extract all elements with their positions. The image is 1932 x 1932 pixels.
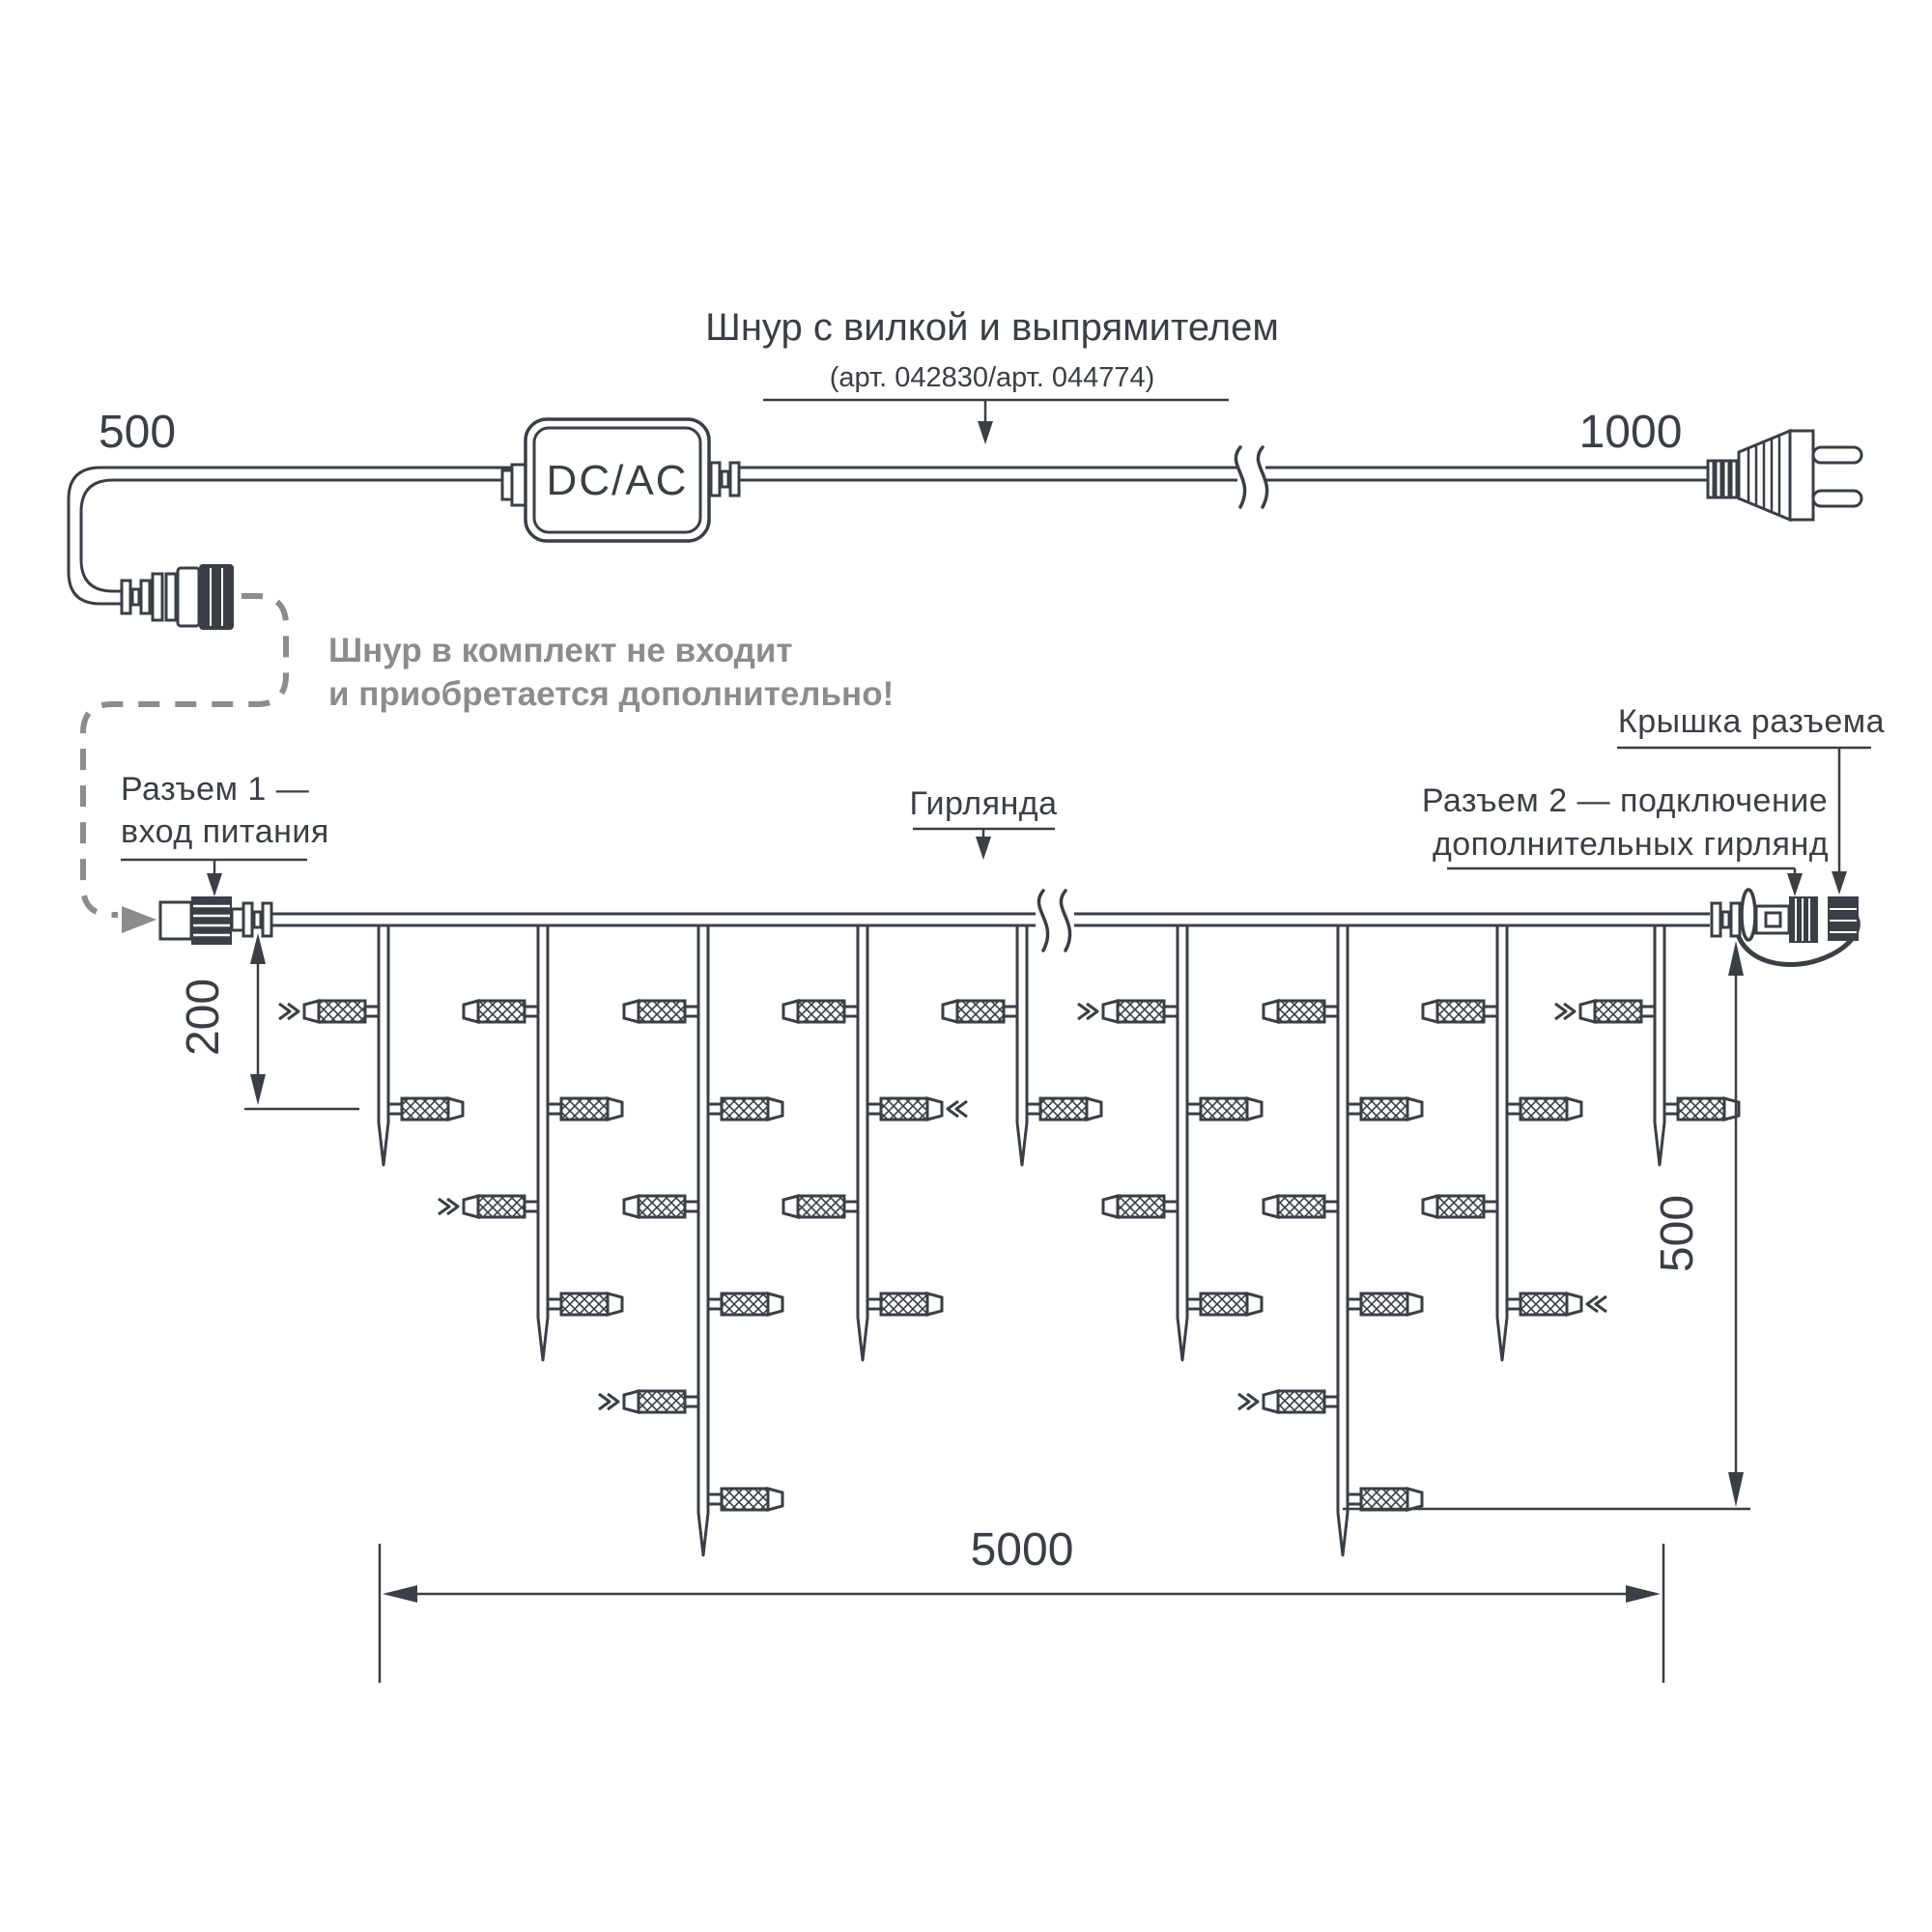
led-bulb	[1361, 1489, 1407, 1510]
title-arrow	[978, 421, 993, 444]
bulb-tip	[1264, 1001, 1278, 1022]
dim-500-height-value: 500	[1652, 1195, 1703, 1272]
led-bulb	[1040, 1098, 1087, 1120]
bulb-neck	[548, 1104, 561, 1114]
bulb-neck	[685, 1007, 698, 1016]
connector1-callout: Разъем 1 — вход питания	[121, 771, 329, 896]
led-bulb	[1201, 1293, 1247, 1315]
bulb-marker-chevron	[1238, 1394, 1249, 1409]
wire-joint	[132, 589, 139, 605]
bulb-tip	[927, 1098, 942, 1120]
led-bulb	[881, 1293, 927, 1315]
bulb-neck	[525, 1007, 538, 1016]
wire-joint	[730, 463, 739, 496]
connector2-callout: Разъем 2 — подключение дополнительных ги…	[1422, 782, 1829, 896]
cord-title-callout: Шнур с вилкой и выпрямителем (арт. 04283…	[705, 306, 1279, 444]
garland-drop	[379, 924, 388, 1165]
bulb-tip	[624, 1196, 639, 1217]
connector2-label-line2: дополнительных гирлянд	[1433, 826, 1829, 863]
bulb-marker-chevron	[439, 1199, 449, 1214]
bulb-marker-chevron	[279, 1004, 290, 1019]
garland-drop	[858, 924, 867, 1360]
bulb-marker-chevron	[956, 1101, 967, 1117]
bulb-tip	[927, 1293, 942, 1315]
bulb-tip	[1580, 1001, 1595, 1022]
bulb-neck	[1348, 1104, 1361, 1114]
bulb-neck	[1641, 1007, 1655, 1016]
bulb-marker-chevron	[1555, 1004, 1566, 1019]
bulb-neck	[1187, 1104, 1201, 1114]
dim-1000-cord: 1000	[1579, 407, 1683, 458]
garland-drop	[1178, 924, 1187, 1360]
led-bulb	[478, 1196, 525, 1217]
bulb-tip	[768, 1098, 782, 1120]
bulb-tip	[1264, 1196, 1278, 1217]
bulb-tip	[1407, 1489, 1422, 1510]
led-bulb	[798, 1196, 844, 1217]
cord-output-connector	[153, 564, 234, 630]
bulb-tip	[1407, 1098, 1422, 1120]
bulb-neck	[1664, 1104, 1678, 1114]
wire-joint	[1731, 903, 1740, 936]
led-bulb	[1201, 1098, 1247, 1120]
bulb-neck	[1484, 1007, 1497, 1016]
led-bulb	[639, 1196, 685, 1217]
led-bulb	[1595, 1001, 1641, 1022]
bulb-tip	[1247, 1293, 1262, 1315]
bulb-neck	[365, 1007, 379, 1016]
bulb-neck	[525, 1202, 538, 1211]
dim-500-height: 500	[1343, 941, 1750, 1509]
bulb-marker-chevron	[1596, 1296, 1606, 1312]
bulb-tip	[783, 1196, 798, 1217]
led-bulb	[319, 1001, 365, 1022]
led-bulb	[722, 1489, 768, 1510]
bulb-neck	[1324, 1397, 1338, 1406]
note-line2: и приобретается дополнительно!	[328, 675, 894, 713]
bulb-tip	[448, 1098, 463, 1120]
garland-drop	[1338, 924, 1348, 1555]
seal-ring	[1742, 890, 1755, 940]
led-bulb	[798, 1001, 844, 1022]
led-bulb	[1278, 1001, 1324, 1022]
led-bulb	[478, 1001, 525, 1022]
led-bulb	[722, 1098, 768, 1120]
plug-prong-bottom	[1813, 491, 1861, 506]
plug-prong-top	[1813, 447, 1861, 463]
bulb-neck	[1187, 1299, 1201, 1309]
wire-joint	[122, 581, 130, 613]
bulb-neck	[388, 1104, 402, 1114]
wire-break-mark	[1258, 447, 1266, 507]
garland-drop	[538, 924, 548, 1360]
cord-subtitle: (арт. 042830/арт. 044774)	[830, 362, 1155, 393]
led-bulb	[1361, 1098, 1407, 1120]
led-bulb	[1520, 1098, 1567, 1120]
bulb-neck	[1348, 1494, 1361, 1504]
bulb-tip	[624, 1391, 639, 1412]
dc-ac-converter: DC/AC	[502, 419, 709, 541]
cord-connector-knurl	[199, 564, 234, 630]
wire-joint	[254, 912, 261, 927]
led-bulb	[881, 1098, 927, 1120]
bulb-neck	[1507, 1299, 1520, 1309]
dim-5000: 5000	[380, 1524, 1663, 1683]
garland-wiring-diagram: DC/AC Шнур с вилкой и выпрямителем (арт.…	[0, 0, 1932, 1932]
dashed-arrow	[122, 906, 156, 933]
bulb-neck	[708, 1299, 722, 1309]
garland-callout: Гирлянда	[909, 785, 1057, 860]
cord-title: Шнур с вилкой и выпрямителем	[705, 306, 1279, 349]
bulb-neck	[844, 1007, 858, 1016]
note-line1: Шнур в комплект не входит	[328, 632, 793, 669]
led-bulb	[639, 1001, 685, 1022]
cap-label: Крышка разъема	[1618, 703, 1885, 740]
wire-joint	[141, 581, 150, 613]
dim-200-value: 200	[178, 979, 229, 1056]
bulb-neck	[1324, 1202, 1338, 1211]
led-bulb	[722, 1293, 768, 1315]
bulb-tip	[624, 1001, 639, 1022]
bulb-neck	[685, 1202, 698, 1211]
wire-joint	[711, 463, 720, 496]
bulb-neck	[867, 1299, 881, 1309]
bulb-tip	[608, 1098, 622, 1120]
bulb-neck	[1164, 1007, 1178, 1016]
bulb-tip	[768, 1489, 782, 1510]
bulb-tip	[1264, 1391, 1278, 1412]
garland-drops	[122, 447, 1740, 1555]
bulb-neck	[844, 1202, 858, 1211]
bulb-tip	[943, 1001, 957, 1022]
led-bulb	[639, 1391, 685, 1412]
wire-break-mark	[1236, 447, 1244, 507]
wire-joint	[1712, 903, 1720, 936]
led-bulb	[1278, 1196, 1324, 1217]
mains-plug	[1708, 431, 1861, 520]
garland-drop	[1655, 924, 1664, 1165]
bulb-tip	[1567, 1293, 1581, 1315]
bulb-neck	[1164, 1202, 1178, 1211]
connector1-label-line1: Разъем 1 —	[121, 771, 309, 808]
bulb-tip	[464, 1001, 478, 1022]
wire-joint	[263, 903, 271, 936]
led-bulb	[1118, 1001, 1164, 1022]
led-bulb	[957, 1001, 1004, 1022]
wire-break-mark	[1038, 891, 1047, 951]
garland-drop	[1017, 924, 1027, 1165]
garland-drop	[698, 924, 708, 1555]
garland-label: Гирлянда	[909, 785, 1057, 822]
bulb-tip	[783, 1001, 798, 1022]
bulb-tip	[768, 1293, 782, 1315]
connector1-label-line2: вход питания	[121, 813, 329, 850]
bulb-marker-chevron	[1078, 1004, 1089, 1019]
bulb-tip	[1087, 1098, 1101, 1120]
led-bulb	[1278, 1391, 1324, 1412]
led-bulb	[402, 1098, 448, 1120]
bulb-tip	[608, 1293, 622, 1315]
bulb-neck	[1027, 1104, 1040, 1114]
bulb-neck	[708, 1494, 722, 1504]
bulb-tip	[1423, 1001, 1437, 1022]
bulb-neck	[1507, 1104, 1520, 1114]
bulb-neck	[1484, 1202, 1497, 1211]
led-bulb	[1118, 1196, 1164, 1217]
bulb-neck	[1348, 1299, 1361, 1309]
connector2-label-line1: Разъем 2 — подключение	[1422, 782, 1828, 819]
wire-break-mark	[1061, 891, 1069, 951]
led-bulb	[561, 1098, 608, 1120]
bulb-tip	[1103, 1196, 1118, 1217]
led-bulb	[561, 1293, 608, 1315]
led-bulb	[1437, 1001, 1484, 1022]
led-bulb	[1678, 1098, 1724, 1120]
bulb-neck	[548, 1299, 561, 1309]
connector-1	[160, 896, 243, 945]
led-bulb	[1437, 1196, 1484, 1217]
bulb-marker-chevron	[599, 1394, 610, 1409]
bulb-neck	[867, 1104, 881, 1114]
bulb-tip	[1567, 1098, 1581, 1120]
garland-wire	[271, 914, 1710, 925]
connector-2	[1739, 890, 1859, 965]
bulb-tip	[1247, 1098, 1262, 1120]
bulb-tip	[1407, 1293, 1422, 1315]
bulb-tip	[1423, 1196, 1437, 1217]
bulb-tip	[1103, 1001, 1118, 1022]
bulb-neck	[1004, 1007, 1017, 1016]
bulb-tip	[304, 1001, 319, 1022]
bulb-tip	[464, 1196, 478, 1217]
dim-500-cord: 500	[99, 407, 176, 458]
diagram-page: DC/AC Шнур с вилкой и выпрямителем (арт.…	[0, 0, 1932, 1932]
cord-left-outer	[69, 468, 526, 604]
bulb-neck	[708, 1104, 722, 1114]
connector1-knurl	[191, 896, 232, 945]
led-bulb	[1520, 1293, 1567, 1315]
connector-cap	[1828, 896, 1859, 941]
dim-5000-value: 5000	[971, 1524, 1074, 1576]
wire-joint	[722, 471, 728, 487]
not-included-path	[83, 596, 286, 933]
bulb-neck	[1324, 1007, 1338, 1016]
led-bulb	[1361, 1293, 1407, 1315]
bulb-neck	[685, 1397, 698, 1406]
wire-joint	[1722, 912, 1729, 927]
cord-left-inner	[81, 480, 526, 591]
converter-label: DC/AC	[547, 457, 689, 504]
garland-drop	[1497, 924, 1507, 1360]
